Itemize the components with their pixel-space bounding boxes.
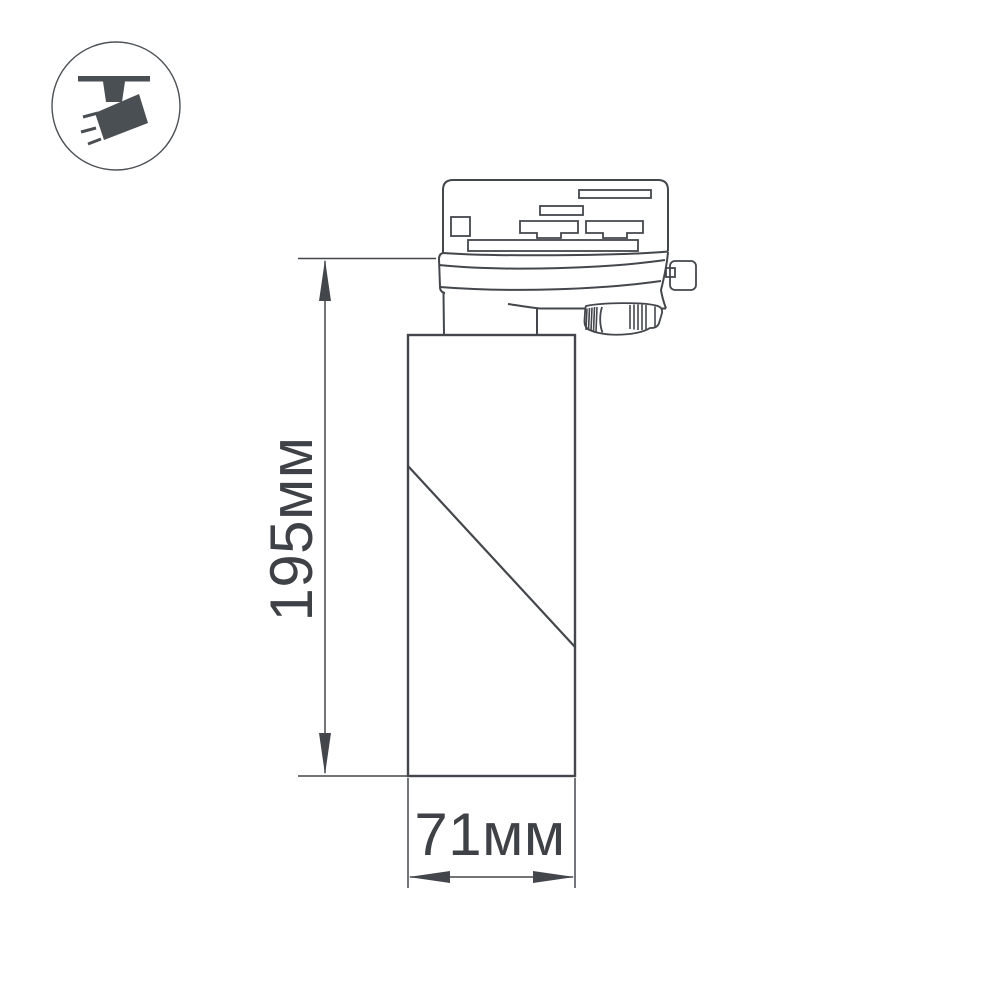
width-dimension-label: 71мм (414, 805, 565, 865)
knob-hatch-line (591, 308, 592, 332)
lamp-body-seam (408, 466, 575, 647)
knob-hatch-line (596, 307, 597, 332)
adjustment-knob (584, 303, 662, 335)
neck-left-edge (444, 293, 445, 335)
adapter-head-outline (443, 180, 668, 253)
adapter-contact-slot (579, 190, 651, 198)
ring-line (439, 260, 665, 269)
knob-hatch-line (586, 309, 587, 331)
adapter-contact-block (520, 221, 578, 238)
arrowhead-up (319, 260, 331, 302)
arrowhead-down (319, 733, 331, 775)
adapter-ground-contact (451, 217, 470, 236)
knob-hatch-line (589, 308, 590, 331)
track-adapter (443, 180, 668, 253)
adapter-contacts (451, 190, 651, 251)
ring-line (440, 281, 661, 290)
adapter-rings (439, 252, 668, 309)
arrowhead-right (533, 871, 575, 883)
dimension-drawing-canvas: 195мм 71мм (0, 0, 1000, 1000)
adapter-contact-block (586, 221, 643, 238)
adapter-contact-slot (540, 206, 583, 215)
adapter-latch (666, 261, 696, 290)
adapter-base-plate (468, 240, 638, 251)
arrowhead-left (409, 871, 451, 883)
height-dimension-label: 195мм (262, 436, 322, 621)
ring-line (443, 252, 668, 256)
latch-tab (670, 261, 696, 290)
lamp-body (408, 335, 575, 776)
knob-hatch-line (594, 307, 595, 332)
